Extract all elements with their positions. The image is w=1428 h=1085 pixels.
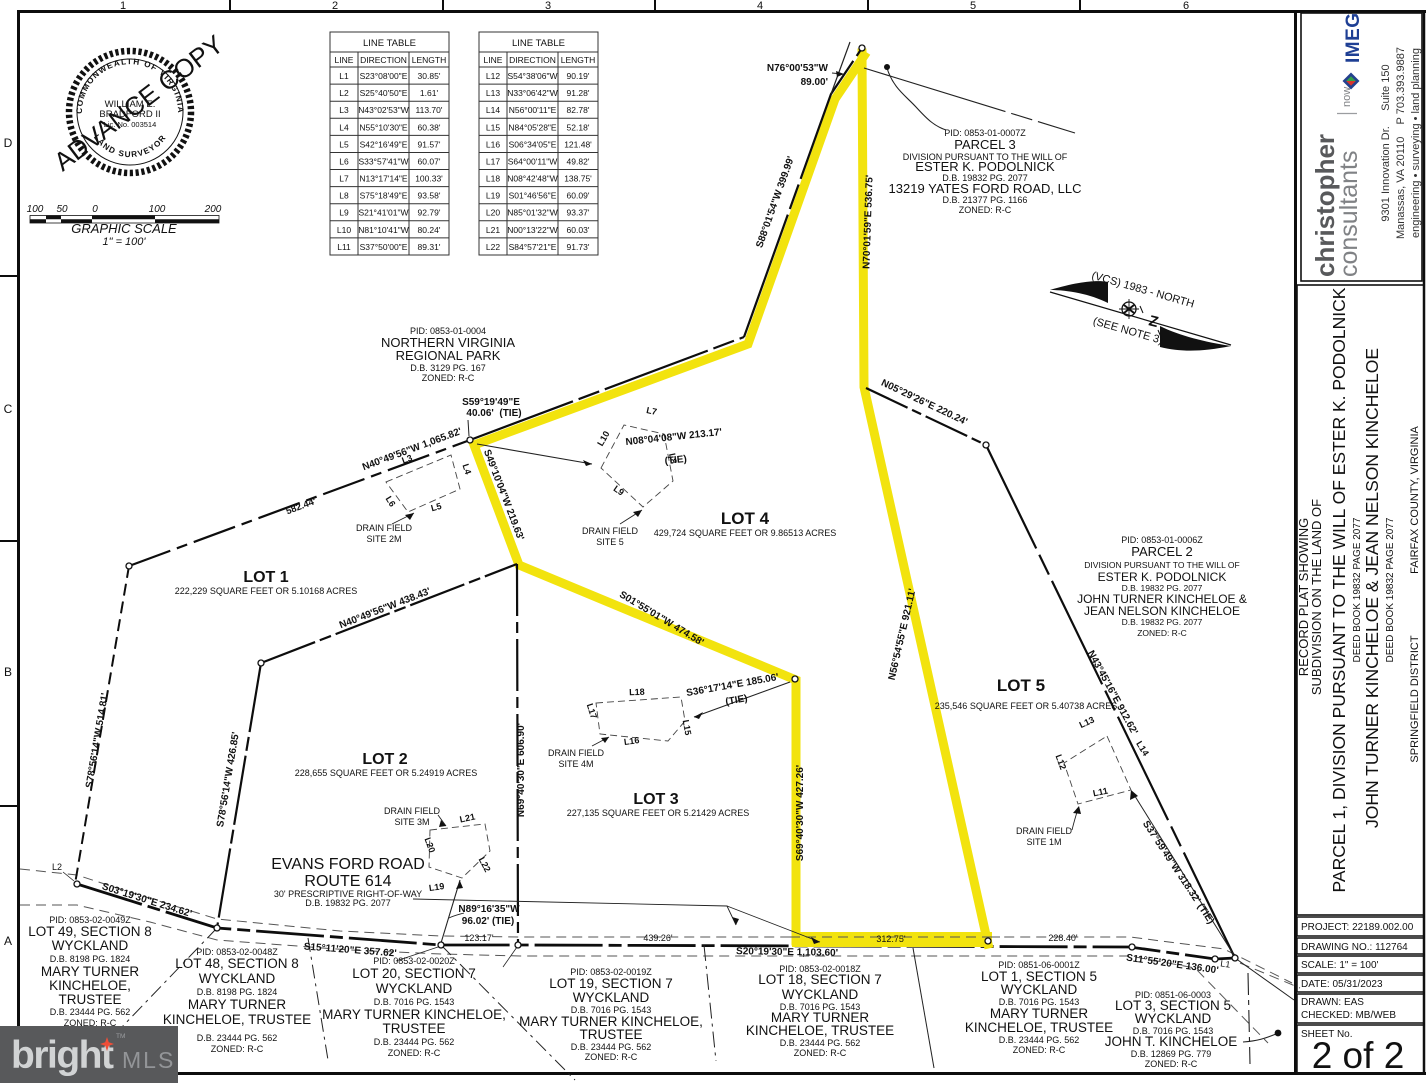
svg-text:TRUSTEE: TRUSTEE: [382, 1021, 445, 1036]
svg-text:now: now: [1341, 87, 1353, 107]
svg-text:TM: TM: [116, 1033, 125, 1040]
svg-text:N56°00'11"E: N56°00'11"E: [509, 105, 557, 115]
svg-text:60.07': 60.07': [418, 157, 441, 167]
svg-text:FAIRFAX COUNTY, VIRGINIA: FAIRFAX COUNTY, VIRGINIA: [1409, 425, 1421, 573]
svg-text:2: 2: [332, 0, 338, 12]
svg-text:JOHN T. KINCHELOE: JOHN T. KINCHELOE: [1105, 1034, 1238, 1049]
svg-text:LOT 3: LOT 3: [633, 791, 678, 808]
svg-text:L11: L11: [337, 242, 351, 252]
svg-text:N08°42'48"W: N08°42'48"W: [507, 174, 558, 184]
svg-text:PID: 0853-02-0020Z: PID: 0853-02-0020Z: [373, 956, 455, 966]
svg-text:DRAWING NO.: 112764: DRAWING NO.: 112764: [1301, 942, 1408, 953]
svg-text:DRAIN FIELD: DRAIN FIELD: [548, 748, 605, 758]
svg-text:1.61': 1.61': [420, 88, 439, 98]
svg-text:5: 5: [970, 0, 976, 12]
svg-text:L19: L19: [486, 191, 500, 201]
svg-text:123.17': 123.17': [464, 933, 494, 943]
svg-text:SITE 2M: SITE 2M: [366, 534, 401, 544]
svg-text:D.B. 21377 PG. 1166: D.B. 21377 PG. 1166: [943, 195, 1028, 205]
svg-text:WYCKLAND: WYCKLAND: [573, 990, 650, 1005]
svg-text:ZONED: R-C: ZONED: R-C: [1013, 1045, 1066, 1055]
svg-text:L3: L3: [339, 105, 349, 115]
svg-text:3: 3: [545, 0, 551, 12]
svg-text:60.09': 60.09': [567, 191, 590, 201]
svg-text:D.B. 23444 PG. 562: D.B. 23444 PG. 562: [197, 1033, 278, 1043]
svg-text:6: 6: [1183, 0, 1189, 12]
svg-text:L8: L8: [339, 191, 349, 201]
svg-text:ZONED: R-C: ZONED: R-C: [422, 373, 475, 383]
svg-text:S37°50'00"E: S37°50'00"E: [360, 242, 408, 252]
svg-text:L18: L18: [629, 687, 645, 698]
svg-text:S01°46'56"E: S01°46'56"E: [509, 191, 557, 201]
svg-text:L16: L16: [623, 735, 640, 747]
svg-text:93.58': 93.58': [418, 191, 441, 201]
svg-text:Manassas, VA 20110 P 703.39: Manassas, VA 20110 P 703.393.9887: [1395, 47, 1407, 239]
svg-text:S21°41'01"W: S21°41'01"W: [358, 208, 408, 218]
svg-text:100: 100: [149, 204, 166, 215]
svg-text:MARY TURNER KINCHELOE,: MARY TURNER KINCHELOE,: [322, 1007, 506, 1022]
svg-text:LOT 4: LOT 4: [721, 509, 770, 528]
svg-text:LINE TABLE: LINE TABLE: [512, 38, 565, 49]
svg-text:LOT 20, SECTION 7: LOT 20, SECTION 7: [352, 966, 476, 981]
svg-text:228,655 SQUARE FEET OR 5.24919: 228,655 SQUARE FEET OR 5.24919 ACRES: [295, 768, 477, 778]
svg-text:D: D: [4, 136, 13, 150]
svg-text:S06°34'05"E: S06°34'05"E: [509, 139, 557, 149]
svg-text:S69°40'30"W 427.26': S69°40'30"W 427.26': [795, 765, 806, 861]
svg-text:DEED BOOK 19832 PAGE 2077: DEED BOOK 19832 PAGE 2077: [1385, 517, 1396, 662]
svg-text:0: 0: [92, 204, 98, 215]
svg-text:9301 Innovation Dr. Suite: 9301 Innovation Dr. Suite 150: [1380, 64, 1392, 221]
svg-text:EVANS FORD ROAD: EVANS FORD ROAD: [271, 856, 425, 873]
svg-text:WYCKLAND: WYCKLAND: [52, 938, 129, 953]
svg-text:S64°00'11"W: S64°00'11"W: [508, 157, 557, 167]
svg-text:ZONED: R-C: ZONED: R-C: [1145, 1059, 1198, 1069]
svg-text:200: 200: [204, 204, 222, 215]
svg-text:121.48': 121.48': [564, 139, 592, 149]
svg-text:CHECKED: MB/WEB: CHECKED: MB/WEB: [1301, 1010, 1396, 1021]
svg-text:ESTER K. PODOLNICK: ESTER K. PODOLNICK: [915, 159, 1055, 174]
svg-text:L14: L14: [486, 105, 500, 115]
svg-text:D.B. 23444 PG. 562: D.B. 23444 PG. 562: [374, 1037, 455, 1047]
svg-text:LENGTH: LENGTH: [412, 55, 446, 65]
svg-text:235,546 SQUARE FEET OR 5.40738: 235,546 SQUARE FEET OR 5.40738 ACRES: [935, 701, 1117, 711]
svg-text:engineering • surveying • land: engineering • surveying • land planning: [1410, 48, 1422, 238]
svg-text:N00°13'22"W: N00°13'22"W: [507, 225, 558, 235]
svg-text:LOT 48, SECTION 8: LOT 48, SECTION 8: [175, 956, 299, 971]
svg-text:KINCHELOE, TRUSTEE: KINCHELOE, TRUSTEE: [746, 1023, 894, 1038]
svg-text:L2: L2: [52, 862, 62, 872]
svg-text:LOT 5: LOT 5: [997, 676, 1045, 695]
svg-text:D.B. 23444 PG. 562: D.B. 23444 PG. 562: [999, 1035, 1080, 1045]
svg-text:LOT 1: LOT 1: [243, 569, 288, 586]
svg-text:L12: L12: [486, 71, 500, 81]
svg-text:L16: L16: [486, 139, 500, 149]
svg-text:N84°05'28"E: N84°05'28"E: [508, 122, 557, 132]
svg-text:L2: L2: [339, 88, 349, 98]
svg-text:L22: L22: [486, 242, 500, 252]
svg-text:312.75': 312.75': [876, 934, 906, 944]
svg-text:S59°19'49"E: S59°19'49"E: [462, 397, 520, 408]
svg-text:S23°08'00"E: S23°08'00"E: [360, 71, 408, 81]
svg-text:DRAWN: EAS: DRAWN: EAS: [1301, 997, 1364, 1008]
svg-text:D.B. 8198 PG. 1824: D.B. 8198 PG. 1824: [197, 987, 278, 997]
svg-text:GRAPHIC SCALE: GRAPHIC SCALE: [71, 221, 177, 236]
svg-text:PARCEL 2: PARCEL 2: [1131, 544, 1192, 559]
svg-text:MARY TURNER: MARY TURNER: [990, 1006, 1089, 1021]
svg-text:439.26': 439.26': [643, 933, 673, 943]
svg-text:JOHN TURNER KINCHELOE & JEAN N: JOHN TURNER KINCHELOE & JEAN NELSON KINC…: [1362, 348, 1382, 828]
svg-text:90.19': 90.19': [567, 71, 590, 81]
svg-text:L15: L15: [486, 122, 500, 132]
svg-text:PARCEL 3: PARCEL 3: [954, 137, 1015, 152]
svg-text:82.78': 82.78': [567, 105, 590, 115]
svg-text:4: 4: [757, 0, 763, 12]
svg-text:MARY TURNER: MARY TURNER: [188, 997, 287, 1012]
svg-text:SITE 1M: SITE 1M: [1026, 837, 1061, 847]
svg-text:D.B. 8198 PG. 1824: D.B. 8198 PG. 1824: [50, 954, 131, 964]
svg-text:13219 YATES FORD ROAD, LLC: 13219 YATES FORD ROAD, LLC: [889, 181, 1082, 196]
svg-text:D.B. 23444 PG. 562: D.B. 23444 PG. 562: [571, 1042, 652, 1052]
svg-text:SITE 3M: SITE 3M: [394, 817, 429, 827]
svg-text:JEAN NELSON KINCHELOE: JEAN NELSON KINCHELOE: [1084, 604, 1240, 618]
svg-text:LOT 49, SECTION 8: LOT 49, SECTION 8: [28, 924, 152, 939]
svg-text:L7: L7: [645, 405, 657, 417]
svg-text:50: 50: [56, 204, 68, 215]
svg-text:ZONED: R-C: ZONED: R-C: [388, 1048, 441, 1058]
svg-text:WYCKLAND: WYCKLAND: [782, 987, 859, 1002]
svg-text:L6: L6: [339, 157, 349, 167]
svg-text:consultants: consultants: [1335, 151, 1363, 277]
svg-text:SCALE: 1" = 100': SCALE: 1" = 100': [1301, 960, 1379, 971]
svg-text:138.75': 138.75': [564, 174, 592, 184]
svg-text:222,229 SQUARE FEET OR 5.10168: 222,229 SQUARE FEET OR 5.10168 ACRES: [175, 586, 357, 596]
svg-text:LINE: LINE: [484, 55, 503, 65]
svg-text:DATE: 05/31/2023: DATE: 05/31/2023: [1301, 979, 1383, 990]
svg-text:93.37': 93.37': [567, 208, 590, 218]
svg-text:1: 1: [120, 0, 126, 12]
svg-text:S25°40'50"E: S25°40'50"E: [360, 88, 408, 98]
svg-text:LENGTH: LENGTH: [561, 55, 595, 65]
svg-text:S42°16'49"E: S42°16'49"E: [360, 139, 408, 149]
svg-text:60.38': 60.38': [418, 122, 441, 132]
svg-text:100: 100: [27, 204, 44, 215]
svg-text:DRAIN FIELD: DRAIN FIELD: [356, 523, 413, 533]
svg-text:228.40': 228.40': [1048, 933, 1078, 943]
svg-text:ZONED: R-C: ZONED: R-C: [585, 1052, 638, 1062]
svg-text:ZONED: R-C: ZONED: R-C: [1137, 628, 1187, 638]
svg-text:N85°01'32"W: N85°01'32"W: [507, 208, 558, 218]
svg-text:2 of 2: 2 of 2: [1312, 1035, 1405, 1076]
svg-text:N76°00'53"W: N76°00'53"W: [767, 63, 829, 74]
svg-text:N43°02'53"W: N43°02'53"W: [358, 105, 409, 115]
svg-text:TRUSTEE: TRUSTEE: [58, 992, 121, 1007]
svg-text:40.06' (TIE): 40.06' (TIE): [466, 408, 521, 419]
svg-text:S75°18'49"E: S75°18'49"E: [360, 191, 408, 201]
svg-text:S84°57'21"E: S84°57'21"E: [509, 242, 557, 252]
svg-text:DRAIN FIELD: DRAIN FIELD: [582, 526, 639, 536]
svg-text:L19: L19: [428, 881, 445, 893]
svg-text:D.B. 12869 PG. 779: D.B. 12869 PG. 779: [1131, 1049, 1212, 1059]
svg-text:60.03': 60.03': [567, 225, 590, 235]
svg-text:N13°17'14"E: N13°17'14"E: [359, 174, 408, 184]
svg-text:96.02' (TIE): 96.02' (TIE): [462, 916, 514, 927]
svg-text:L4: L4: [339, 122, 349, 132]
svg-text:91.73': 91.73': [567, 242, 590, 252]
svg-text:ROUTE 614: ROUTE 614: [304, 873, 391, 890]
svg-text:ZONED: R-C: ZONED: R-C: [794, 1048, 847, 1058]
svg-text:L8: L8: [667, 452, 679, 464]
svg-text:S33°57'41"W: S33°57'41"W: [358, 157, 408, 167]
svg-text:ESTER K. PODOLNICK: ESTER K. PODOLNICK: [1098, 570, 1227, 584]
svg-text:L13: L13: [486, 88, 500, 98]
svg-text:L20: L20: [486, 208, 500, 218]
svg-text:L1: L1: [339, 71, 349, 81]
svg-text:92.79': 92.79': [418, 208, 441, 218]
svg-text:D.B. 19832 PG. 2077: D.B. 19832 PG. 2077: [1122, 617, 1203, 627]
svg-text:89.31': 89.31': [418, 242, 441, 252]
svg-text:ZONED: R-C: ZONED: R-C: [211, 1044, 264, 1054]
svg-text:100.33': 100.33': [415, 174, 443, 184]
svg-text:LOT 19, SECTION 7: LOT 19, SECTION 7: [549, 976, 673, 991]
svg-text:N81°10'41"W: N81°10'41"W: [358, 225, 409, 235]
svg-text:LOT 2: LOT 2: [362, 751, 407, 768]
svg-text:SPRINGFIELD DISTRICT: SPRINGFIELD DISTRICT: [1409, 635, 1421, 762]
svg-text:L1: L1: [1220, 958, 1231, 969]
svg-text:N55°10'30"E: N55°10'30"E: [359, 122, 408, 132]
svg-text:B: B: [4, 665, 12, 679]
svg-text:49.82': 49.82': [567, 157, 590, 167]
svg-text:bright: bright: [11, 1034, 114, 1077]
svg-text:89.00': 89.00': [801, 77, 828, 88]
svg-text:LINE: LINE: [335, 55, 354, 65]
svg-text:N69°40'30"E 606.90': N69°40'30"E 606.90': [516, 723, 527, 817]
svg-text:D.B. 3129 PG. 167: D.B. 3129 PG. 167: [410, 363, 486, 373]
svg-text:SITE 5: SITE 5: [596, 537, 624, 547]
svg-text:S54°38'06"W: S54°38'06"W: [507, 71, 557, 81]
svg-text:L10: L10: [337, 225, 351, 235]
svg-text:D.B. 23444 PG. 562: D.B. 23444 PG. 562: [50, 1007, 131, 1017]
svg-text:LOT 18, SECTION 7: LOT 18, SECTION 7: [758, 972, 882, 987]
svg-text:L18: L18: [486, 174, 500, 184]
svg-text:L7: L7: [339, 174, 349, 184]
svg-text:DRAIN FIELD: DRAIN FIELD: [384, 806, 441, 816]
svg-text:TRUSTEE: TRUSTEE: [579, 1027, 642, 1042]
svg-text:1" = 100': 1" = 100': [102, 236, 146, 248]
svg-text:D.B. 19832 PG. 2077: D.B. 19832 PG. 2077: [305, 898, 391, 908]
svg-text:KINCHELOE, TRUSTEE: KINCHELOE, TRUSTEE: [965, 1020, 1113, 1035]
svg-text:L21: L21: [486, 225, 500, 235]
svg-text:N33°06'42"W: N33°06'42"W: [507, 88, 558, 98]
svg-text:SUBDIVISION ON THE LAND OF: SUBDIVISION ON THE LAND OF: [1309, 499, 1324, 695]
svg-text:REGIONAL PARK: REGIONAL PARK: [396, 348, 501, 363]
svg-text:DRAIN FIELD: DRAIN FIELD: [1016, 826, 1073, 836]
svg-text:A: A: [4, 934, 12, 948]
svg-text:52.18': 52.18': [567, 122, 590, 132]
svg-text:L17: L17: [486, 157, 500, 167]
svg-text:MARY TURNER: MARY TURNER: [41, 964, 140, 979]
svg-text:DIRECTION: DIRECTION: [360, 55, 407, 65]
svg-text:MLS: MLS: [122, 1047, 175, 1073]
svg-text:S20°19'30"E 1,103.60': S20°19'30"E 1,103.60': [736, 946, 838, 959]
svg-text:N89°16'35"W: N89°16'35"W: [458, 904, 520, 915]
svg-text:L9: L9: [339, 208, 349, 218]
svg-text:WYCKLAND: WYCKLAND: [376, 981, 453, 996]
svg-text:91.57': 91.57': [418, 139, 441, 149]
svg-text:LINE TABLE: LINE TABLE: [363, 38, 416, 49]
svg-text:KINCHELOE, TRUSTEE: KINCHELOE, TRUSTEE: [163, 1012, 311, 1027]
svg-text:DIRECTION: DIRECTION: [509, 55, 556, 65]
svg-text:D.B. 7016 PG. 1543: D.B. 7016 PG. 1543: [374, 997, 455, 1007]
svg-text:WYCKLAND: WYCKLAND: [199, 971, 276, 986]
svg-text:PROJECT: 22189.002.00: PROJECT: 22189.002.00: [1301, 922, 1414, 933]
svg-text:ZONED: R-C: ZONED: R-C: [959, 205, 1012, 215]
svg-text:C: C: [4, 402, 13, 416]
svg-text:KINCHELOE,: KINCHELOE,: [49, 978, 131, 993]
svg-text:80.24': 80.24': [418, 225, 441, 235]
svg-text:IMEG: IMEG: [1343, 12, 1364, 63]
svg-text:D.B. 23444 PG. 562: D.B. 23444 PG. 562: [780, 1038, 861, 1048]
svg-text:429,724 SQUARE FEET OR 9.86513: 429,724 SQUARE FEET OR 9.86513 ACRES: [654, 528, 836, 538]
svg-text:WYCKLAND: WYCKLAND: [1135, 1011, 1212, 1026]
svg-text:L5: L5: [339, 139, 349, 149]
svg-text:PARCEL 1, DIVISION PURSUANT TO: PARCEL 1, DIVISION PURSUANT TO THE WILL …: [1329, 287, 1349, 892]
svg-text:SITE 4M: SITE 4M: [558, 759, 593, 769]
svg-text:30.85': 30.85': [418, 71, 441, 81]
svg-text:91.28': 91.28': [567, 88, 590, 98]
svg-text:113.70': 113.70': [416, 105, 443, 115]
svg-text:WYCKLAND: WYCKLAND: [1001, 982, 1078, 997]
svg-text:DIVISION PURSUANT TO THE WILL: DIVISION PURSUANT TO THE WILL OF: [1084, 560, 1239, 570]
svg-text:227,135 SQUARE FEET OR 5.21429: 227,135 SQUARE FEET OR 5.21429 ACRES: [567, 808, 749, 818]
